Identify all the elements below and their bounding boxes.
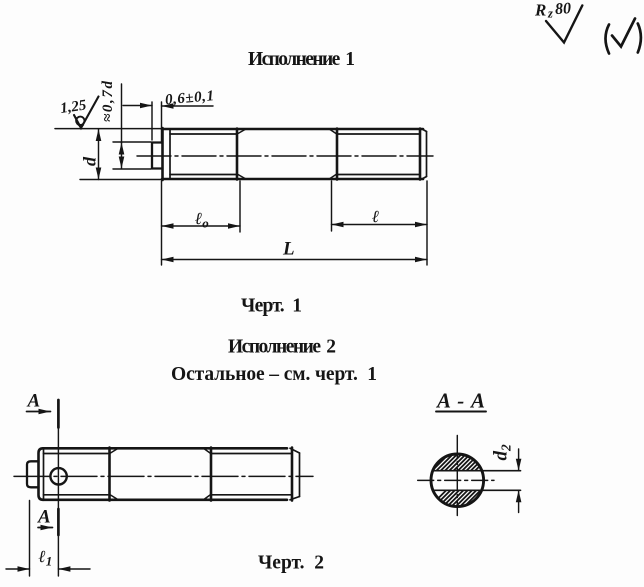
svg-text:d2: d2 — [491, 444, 514, 461]
svg-text:ℓ: ℓ — [372, 207, 379, 226]
svg-text:Черт. 2: Черт. 2 — [258, 553, 324, 574]
svg-text:Исполнение 1: Исполнение 1 — [248, 49, 355, 70]
svg-text:Исполнение 2: Исполнение 2 — [228, 337, 336, 358]
svg-text:z: z — [547, 7, 553, 21]
svg-text:d: d — [80, 156, 100, 166]
svg-text:Остальное – см. черт. 1: Остальное – см. черт. 1 — [171, 364, 377, 385]
svg-text:A: A — [27, 391, 41, 412]
svg-text:1,25: 1,25 — [59, 97, 87, 117]
svg-text:R: R — [534, 1, 546, 20]
svg-text:Черт. 1: Черт. 1 — [241, 296, 302, 317]
svg-text:≈0,7d: ≈0,7d — [100, 81, 116, 123]
svg-text:L: L — [282, 239, 295, 260]
svg-text:A - A: A - A — [435, 389, 485, 413]
svg-text:ℓo: ℓo — [195, 209, 209, 231]
svg-text:A: A — [37, 507, 51, 528]
svg-text:80: 80 — [555, 0, 572, 18]
svg-text:ℓ1: ℓ1 — [39, 547, 53, 569]
